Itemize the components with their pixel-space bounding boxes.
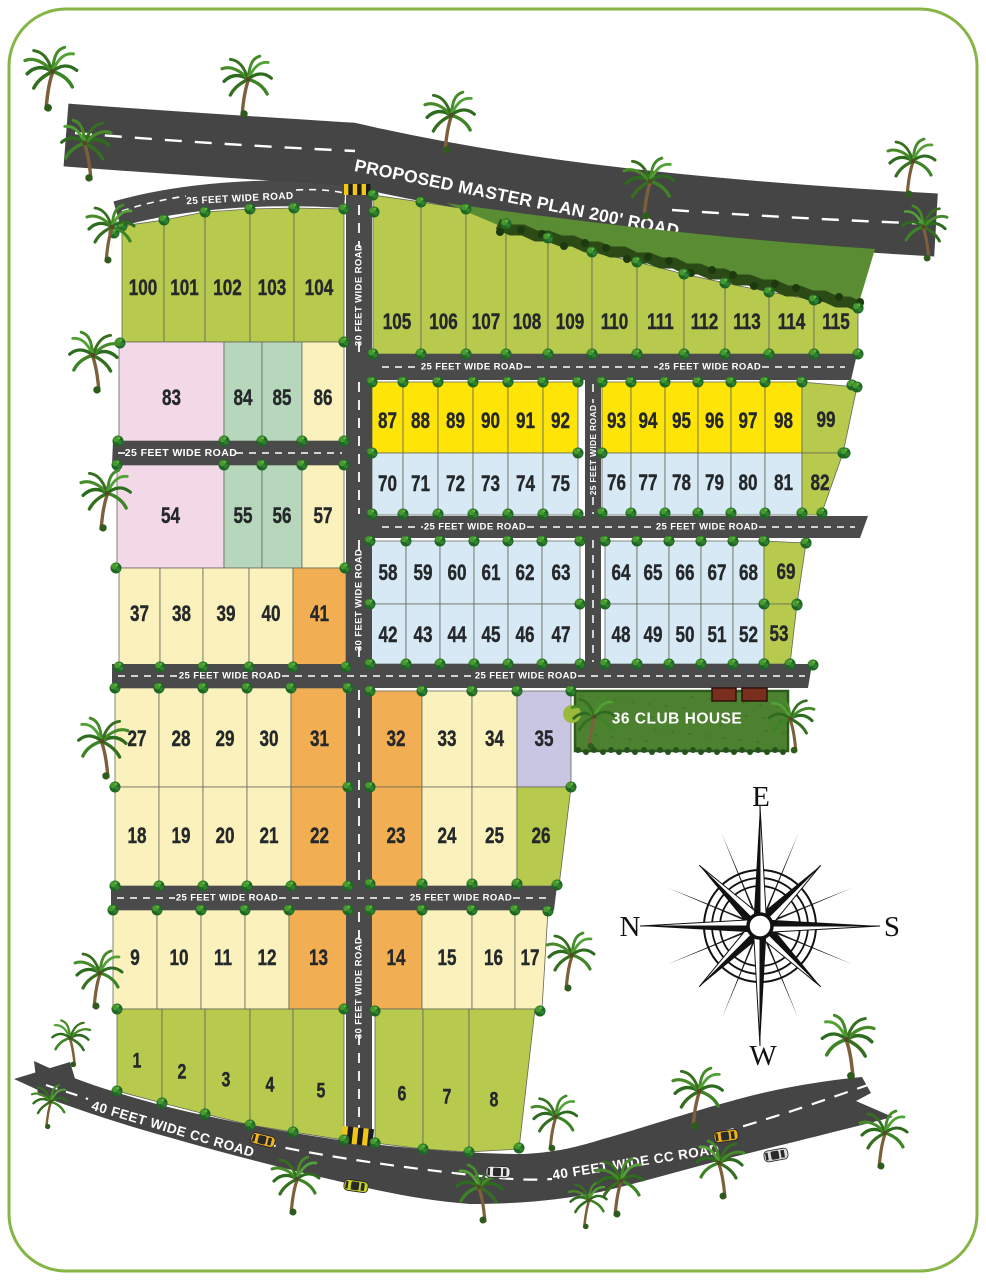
svg-text:30 FEET WIDE ROAD: 30 FEET WIDE ROAD (354, 549, 365, 651)
svg-text:74: 74 (516, 472, 535, 497)
svg-text:29: 29 (215, 727, 234, 752)
svg-text:47: 47 (551, 623, 570, 648)
svg-text:69: 69 (776, 560, 795, 585)
svg-text:48: 48 (611, 623, 630, 648)
svg-text:16: 16 (484, 946, 503, 971)
svg-text:100: 100 (129, 276, 158, 301)
svg-text:102: 102 (213, 276, 242, 301)
svg-text:39: 39 (216, 602, 235, 627)
svg-text:104: 104 (305, 276, 334, 301)
svg-text:44: 44 (447, 623, 466, 648)
svg-text:60: 60 (447, 561, 466, 586)
svg-text:25 FEET WIDE ROAD: 25 FEET WIDE ROAD (421, 362, 523, 373)
svg-text:107: 107 (472, 310, 501, 335)
svg-text:96: 96 (705, 409, 724, 434)
svg-text:78: 78 (672, 471, 691, 496)
svg-text:3: 3 (222, 1067, 231, 1091)
svg-text:37: 37 (130, 602, 149, 627)
svg-text:80: 80 (738, 471, 757, 496)
svg-text:105: 105 (383, 310, 412, 335)
svg-text:103: 103 (258, 276, 287, 301)
svg-text:93: 93 (607, 409, 626, 434)
svg-text:11: 11 (214, 946, 232, 971)
svg-text:87: 87 (378, 409, 397, 434)
svg-text:84: 84 (233, 386, 252, 411)
svg-text:32: 32 (386, 727, 405, 752)
svg-text:57: 57 (313, 504, 332, 529)
svg-text:6: 6 (398, 1081, 407, 1105)
svg-text:24: 24 (437, 824, 456, 849)
svg-text:101: 101 (170, 276, 199, 301)
svg-text:77: 77 (638, 471, 657, 496)
svg-text:46: 46 (515, 623, 534, 648)
svg-text:63: 63 (551, 561, 570, 586)
svg-text:115: 115 (822, 310, 850, 335)
svg-text:64: 64 (611, 561, 630, 586)
svg-text:22: 22 (310, 824, 329, 849)
svg-text:28: 28 (171, 727, 190, 752)
svg-text:81: 81 (774, 471, 793, 496)
svg-text:25: 25 (485, 824, 504, 849)
svg-text:66: 66 (675, 561, 694, 586)
svg-text:88: 88 (411, 409, 430, 434)
svg-text:83: 83 (162, 386, 181, 411)
svg-text:76: 76 (607, 471, 626, 496)
svg-text:114: 114 (778, 310, 806, 335)
svg-text:58: 58 (378, 561, 397, 586)
svg-text:68: 68 (739, 561, 758, 586)
svg-text:53: 53 (769, 622, 788, 647)
svg-text:108: 108 (513, 310, 542, 335)
svg-text:43: 43 (413, 623, 432, 648)
svg-text:19: 19 (171, 824, 190, 849)
svg-text:82: 82 (810, 471, 829, 496)
svg-text:62: 62 (515, 561, 534, 586)
svg-text:95: 95 (672, 409, 691, 434)
svg-text:26: 26 (531, 824, 550, 849)
svg-text:90: 90 (481, 409, 500, 434)
svg-text:7: 7 (443, 1084, 452, 1108)
svg-text:8: 8 (490, 1087, 499, 1111)
svg-text:4: 4 (266, 1072, 275, 1096)
svg-text:42: 42 (378, 623, 397, 648)
svg-text:111: 111 (647, 310, 674, 335)
svg-text:W: W (749, 1040, 777, 1072)
svg-text:51: 51 (707, 623, 726, 648)
svg-text:71: 71 (411, 472, 430, 497)
svg-text:30: 30 (259, 727, 278, 752)
svg-text:31: 31 (310, 727, 329, 752)
svg-text:36 CLUB HOUSE: 36 CLUB HOUSE (612, 711, 743, 728)
svg-text:99: 99 (816, 408, 835, 433)
svg-text:73: 73 (481, 472, 500, 497)
svg-text:N: N (620, 911, 641, 943)
svg-text:2: 2 (178, 1059, 187, 1083)
svg-text:67: 67 (707, 561, 726, 586)
svg-text:25 FEET WIDE ROAD: 25 FEET WIDE ROAD (656, 522, 758, 533)
svg-text:13: 13 (309, 946, 328, 971)
svg-text:35: 35 (534, 727, 553, 752)
svg-text:25 FEET WIDE ROAD: 25 FEET WIDE ROAD (475, 671, 577, 682)
svg-text:41: 41 (310, 602, 329, 627)
svg-text:106: 106 (429, 310, 458, 335)
svg-text:49: 49 (643, 623, 662, 648)
svg-text:25 FEET WIDE ROAD: 25 FEET WIDE ROAD (424, 522, 526, 533)
svg-text:112: 112 (691, 310, 719, 335)
svg-text:72: 72 (446, 472, 465, 497)
svg-text:86: 86 (313, 386, 332, 411)
svg-text:34: 34 (485, 727, 504, 752)
svg-text:17: 17 (520, 946, 539, 971)
svg-text:33: 33 (437, 727, 456, 752)
svg-text:50: 50 (675, 623, 694, 648)
svg-text:92: 92 (551, 409, 570, 434)
svg-text:110: 110 (601, 310, 629, 335)
svg-text:18: 18 (127, 824, 146, 849)
svg-text:59: 59 (413, 561, 432, 586)
svg-text:25 FEET WIDE ROAD: 25 FEET WIDE ROAD (410, 893, 512, 904)
svg-text:S: S (884, 911, 900, 943)
svg-text:20: 20 (215, 824, 234, 849)
svg-text:27: 27 (127, 727, 146, 752)
svg-text:61: 61 (481, 561, 500, 586)
svg-text:25 FEET WIDE ROAD: 25 FEET WIDE ROAD (125, 447, 237, 459)
svg-text:21: 21 (259, 824, 278, 849)
svg-text:5: 5 (317, 1078, 326, 1102)
svg-text:23: 23 (386, 824, 405, 849)
svg-text:97: 97 (738, 409, 757, 434)
svg-text:E: E (752, 781, 770, 813)
svg-text:25 FEET WIDE ROAD: 25 FEET WIDE ROAD (176, 893, 278, 904)
svg-text:25 FEET WIDE ROAD: 25 FEET WIDE ROAD (588, 405, 598, 496)
svg-text:65: 65 (643, 561, 662, 586)
svg-text:30 FEET WIDE ROAD: 30 FEET WIDE ROAD (354, 244, 365, 346)
svg-text:113: 113 (733, 310, 761, 335)
svg-text:79: 79 (705, 471, 724, 496)
svg-text:85: 85 (272, 386, 291, 411)
svg-text:15: 15 (437, 946, 456, 971)
svg-text:70: 70 (378, 472, 397, 497)
svg-text:9: 9 (130, 946, 140, 971)
svg-text:54: 54 (161, 504, 180, 529)
svg-text:10: 10 (169, 946, 188, 971)
svg-text:55: 55 (233, 504, 252, 529)
svg-text:30 FEET WIDE ROAD: 30 FEET WIDE ROAD (354, 937, 365, 1039)
svg-text:75: 75 (551, 472, 570, 497)
svg-text:91: 91 (516, 409, 535, 434)
svg-text:94: 94 (638, 409, 657, 434)
svg-text:56: 56 (272, 504, 291, 529)
svg-text:98: 98 (774, 409, 793, 434)
svg-text:25 FEET WIDE ROAD: 25 FEET WIDE ROAD (179, 671, 281, 682)
svg-text:25 FEET WIDE ROAD: 25 FEET WIDE ROAD (659, 362, 761, 373)
svg-text:1: 1 (133, 1048, 142, 1072)
svg-text:40: 40 (261, 602, 280, 627)
svg-text:89: 89 (446, 409, 465, 434)
svg-text:38: 38 (172, 602, 191, 627)
svg-text:12: 12 (257, 946, 276, 971)
svg-text:45: 45 (481, 623, 500, 648)
svg-text:109: 109 (556, 310, 585, 335)
svg-text:52: 52 (739, 623, 758, 648)
svg-text:14: 14 (386, 946, 405, 971)
